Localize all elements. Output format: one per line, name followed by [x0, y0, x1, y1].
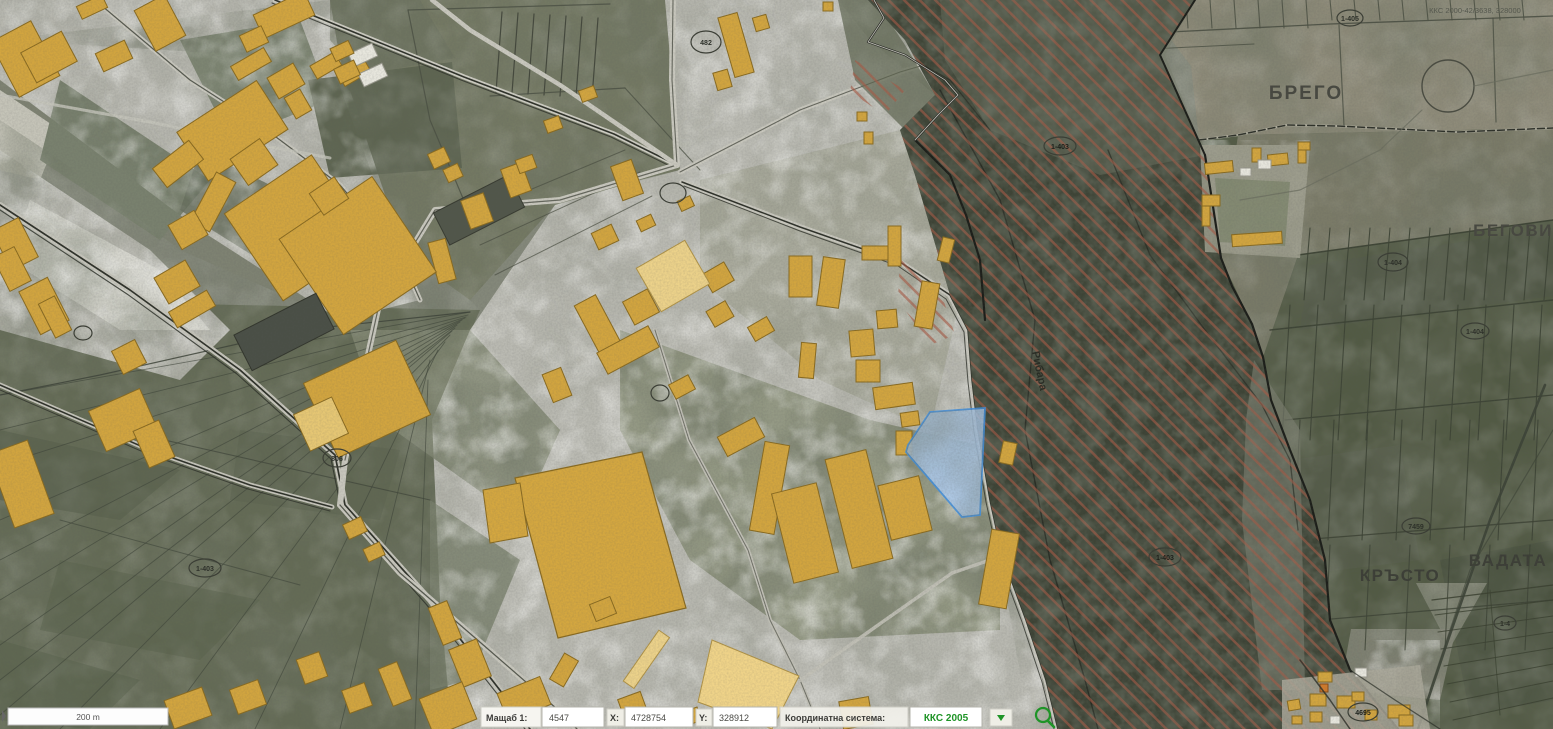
svg-text:4728754: 4728754	[631, 713, 666, 723]
svg-text:ККС 2005: ККС 2005	[924, 713, 969, 724]
svg-text:328912: 328912	[719, 713, 749, 723]
svg-text:200 m: 200 m	[76, 712, 100, 722]
svg-text:Мащаб 1:: Мащаб 1:	[486, 713, 527, 723]
svg-text:X:: X:	[610, 713, 619, 723]
svg-text:Координатна система:: Координатна система:	[785, 713, 885, 723]
svg-text:4547: 4547	[549, 713, 569, 723]
svg-text:Y:: Y:	[699, 713, 707, 723]
